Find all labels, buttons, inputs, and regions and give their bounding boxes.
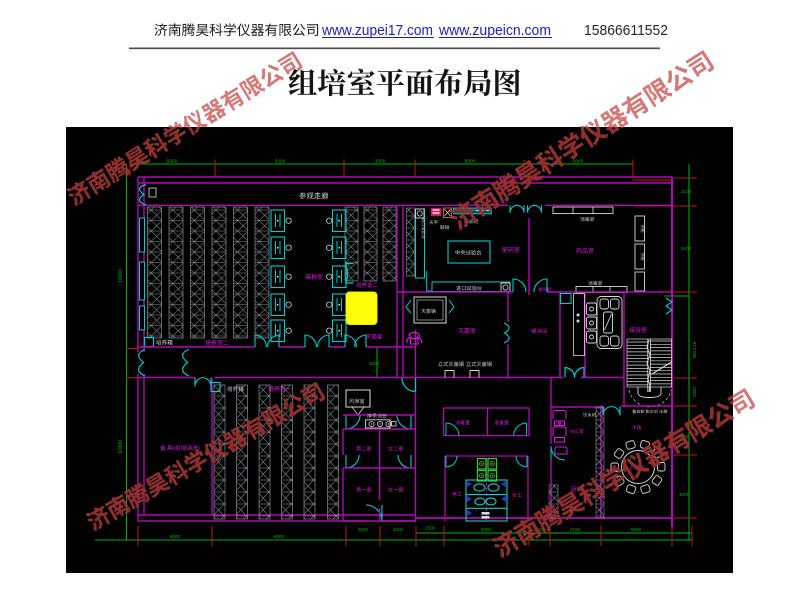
svg-text:15866611552: 15866611552 (584, 22, 668, 39)
svg-text:www.zupeicn.com: www.zupeicn.com (438, 22, 551, 39)
svg-text:5000: 5000 (275, 159, 286, 165)
svg-text:2500: 2500 (393, 527, 404, 532)
svg-text:9824.16: 9824.16 (692, 341, 697, 358)
svg-text:3000: 3000 (375, 159, 386, 165)
svg-text:5000: 5000 (170, 534, 181, 539)
svg-text:5000: 5000 (631, 527, 642, 532)
svg-text:10000: 10000 (118, 269, 124, 283)
svg-text:2042: 2042 (692, 386, 697, 397)
svg-text:8000: 8000 (465, 159, 476, 165)
svg-text:9000: 9000 (274, 534, 285, 539)
svg-text:6100: 6100 (681, 246, 692, 251)
svg-text:4000: 4000 (679, 492, 690, 497)
svg-text:2100: 2100 (681, 189, 692, 194)
svg-text:3600: 3600 (369, 361, 380, 366)
svg-text:1500: 1500 (425, 526, 436, 531)
svg-text:8000: 8000 (481, 527, 492, 532)
svg-text:www.zupei17.com: www.zupei17.com (321, 22, 433, 39)
svg-text:2500: 2500 (358, 527, 369, 532)
svg-text:5000: 5000 (167, 159, 178, 165)
svg-text:2100: 2100 (570, 527, 581, 532)
svg-text:5000: 5000 (573, 159, 584, 165)
svg-text:10000: 10000 (118, 440, 124, 454)
